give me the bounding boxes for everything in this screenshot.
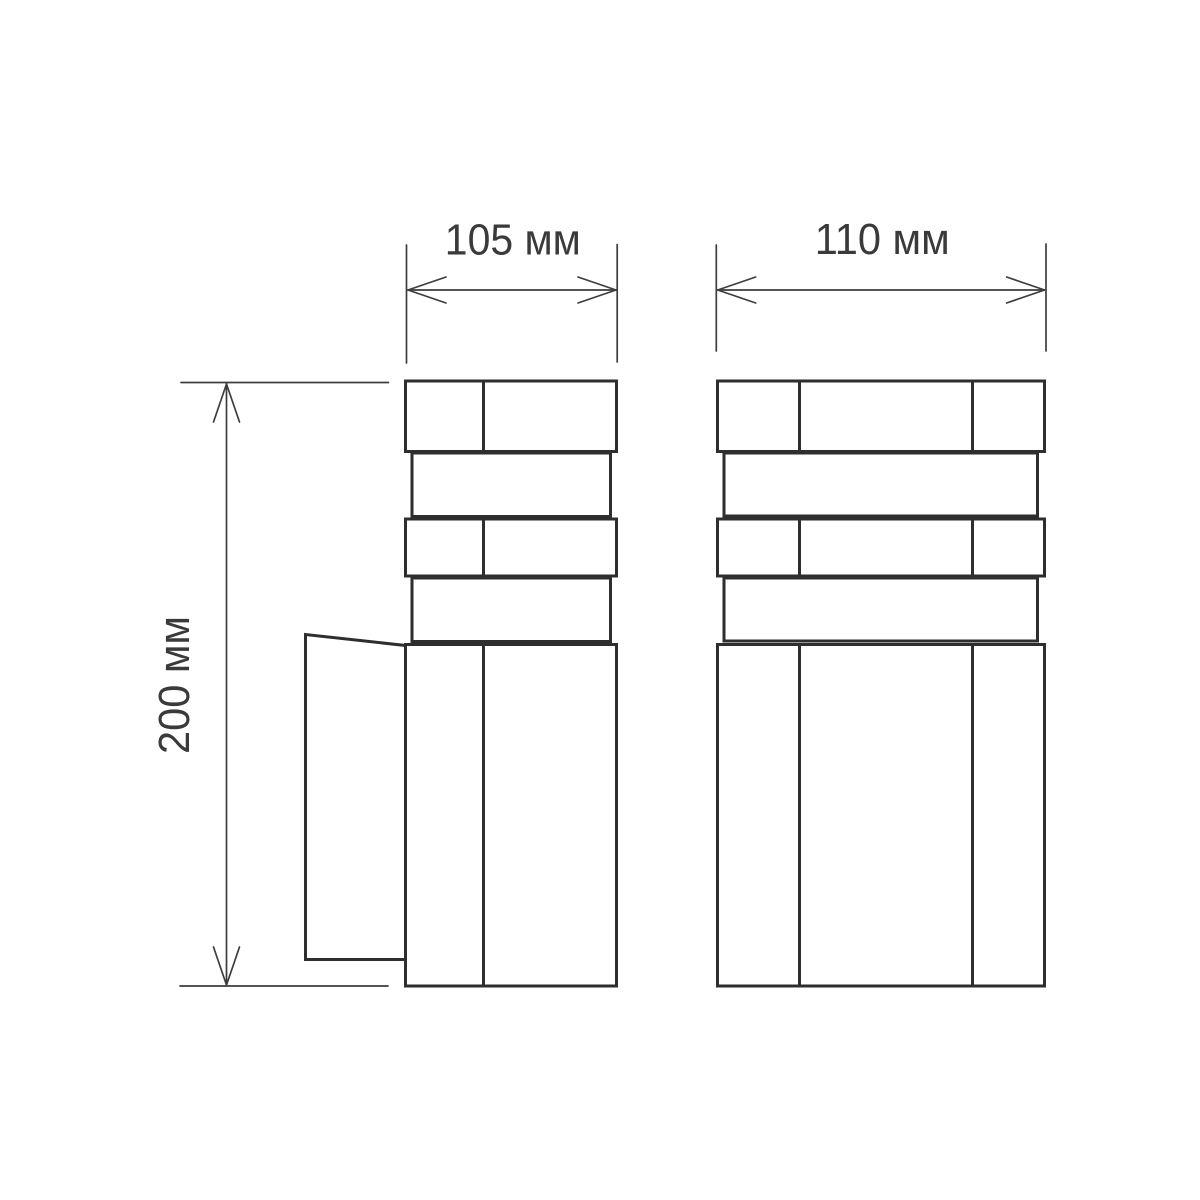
svg-text:105 мм: 105 мм — [445, 217, 581, 265]
svg-text:110 мм: 110 мм — [815, 216, 950, 264]
svg-text:200 мм: 200 мм — [151, 616, 199, 754]
